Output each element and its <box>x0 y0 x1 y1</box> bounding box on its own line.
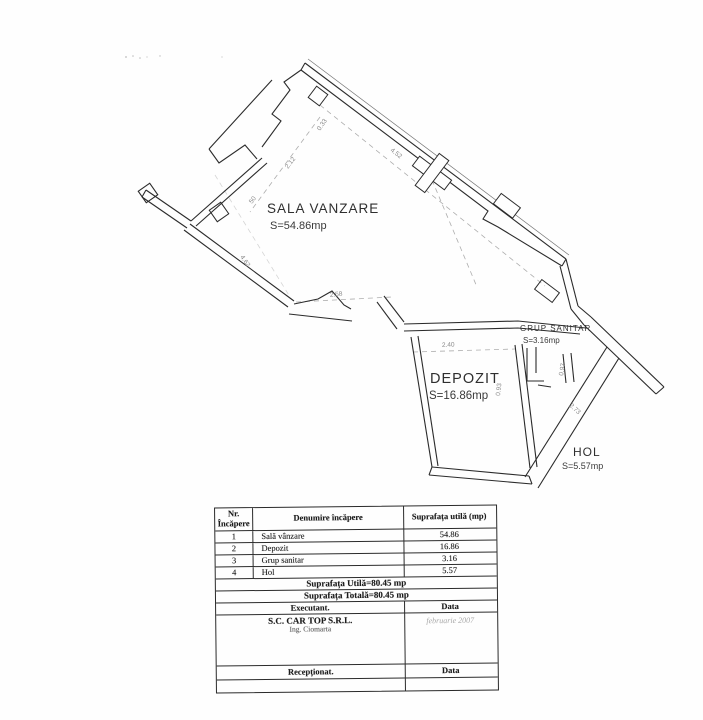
dim-label: 2.58 <box>329 291 343 299</box>
table-header-row: Nr. Încăpere Denumire încăpere Suprafața… <box>215 506 496 532</box>
dimension-lines <box>215 105 545 352</box>
cell-area: 5.57 <box>405 565 495 577</box>
dim-label: 2.40 <box>442 342 455 349</box>
room-area-grup-sanitar: S=3.16mp <box>523 336 560 345</box>
executant-label: Executant. <box>216 601 405 614</box>
room-labels: SALA VANZARE S=54.86mp DEPOZIT S=16.86mp… <box>267 201 603 471</box>
dim-label: 50 <box>248 195 258 205</box>
cell-name: Hol <box>254 565 405 578</box>
cell-area: 3.16 <box>405 553 495 565</box>
cell-name: Grup sanitar <box>254 553 405 566</box>
executant-engineer: Ing. Ciomarta <box>289 626 331 635</box>
receptionat-label: Recepționat. <box>217 664 406 679</box>
cell-area: 54.86 <box>404 529 494 541</box>
dim-label: 2.12 <box>284 156 297 171</box>
cell-name: Sală vânzare <box>253 529 404 542</box>
room-area-sala-vanzare: S=54.86mp <box>270 220 327 232</box>
header-suprafata: Suprafața utilă (mp) <box>404 506 494 529</box>
cell-nr: 4 <box>216 567 254 578</box>
header-nr-line2: Încăpere <box>218 519 250 529</box>
dim-label: 0.97 <box>558 362 567 376</box>
header-nr-incapere: Nr. Încăpere <box>215 508 253 530</box>
room-label-grup-sanitar: GRUP SANITAR <box>520 324 591 333</box>
signature-row: S.C. CAR TOP S.R.L. Ing. Ciomarta februa… <box>216 613 498 667</box>
data-label-2: Data <box>406 664 496 678</box>
area-table: Nr. Încăpere Denumire încăpere Suprafața… <box>214 505 499 694</box>
cell-area: 16.86 <box>404 541 494 553</box>
data-label: Data <box>405 601 495 613</box>
window-symbols <box>209 86 559 302</box>
cell-nr: 3 <box>216 555 254 566</box>
header-denumire: Denumire încăpere <box>253 506 404 530</box>
cell-name: Depozit <box>253 541 404 554</box>
empty-tail-row <box>217 678 498 693</box>
dimension-labels: 0.33 4.52 2.12 50 4.62 2.58 2.40 0.93 0.… <box>238 117 582 416</box>
room-label-hol: HOL <box>573 445 601 459</box>
door-icon <box>535 280 560 303</box>
cell-nr: 2 <box>215 543 253 554</box>
walls <box>138 59 664 488</box>
empty-cell <box>217 678 406 692</box>
room-label-depozit: DEPOZIT <box>430 371 500 387</box>
scanned-floor-plan-page: 0.33 4.52 2.12 50 4.62 2.58 2.40 0.93 0.… <box>0 0 703 720</box>
dim-label: 4.52 <box>389 147 404 160</box>
dim-label: 2.73 <box>568 402 582 416</box>
executant-signature-cell: S.C. CAR TOP S.R.L. Ing. Ciomarta <box>216 613 406 665</box>
window-icon <box>308 86 328 106</box>
empty-cell <box>406 678 496 691</box>
room-label-sala-vanzare: SALA VANZARE <box>267 201 379 216</box>
date-value: februarie 2007 <box>405 613 496 664</box>
cell-nr: 1 <box>215 531 253 542</box>
room-area-depozit: S=16.86mp <box>429 390 488 402</box>
room-area-hol: S=5.57mp <box>562 461 603 471</box>
scan-noise <box>125 55 222 59</box>
